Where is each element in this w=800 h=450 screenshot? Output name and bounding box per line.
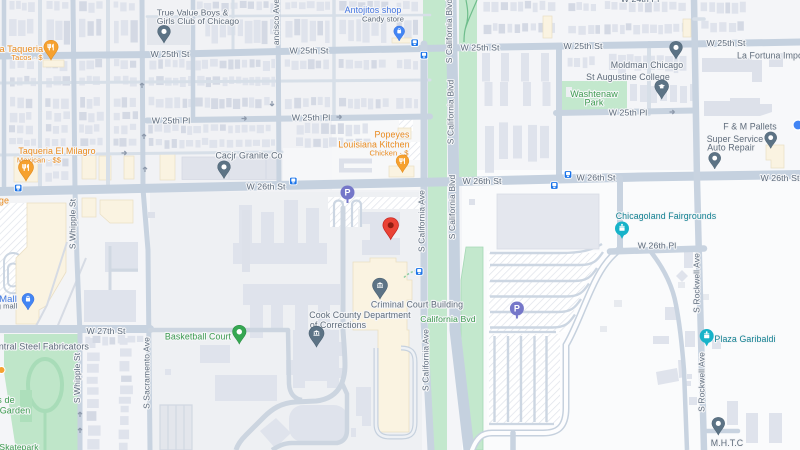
svg-text:Criminal Court Building: Criminal Court Building (371, 300, 463, 310)
svg-text:W 25th Pl: W 25th Pl (152, 116, 191, 126)
svg-text:Chicagoland Fairgrounds: Chicagoland Fairgrounds (616, 211, 717, 221)
svg-text:W 26th St: W 26th St (576, 173, 616, 183)
svg-text:Park: Park (585, 98, 604, 108)
svg-text:California Bvd: California Bvd (420, 314, 476, 324)
svg-text:W 25th Pl: W 25th Pl (292, 113, 331, 123)
svg-text:Cook County Department: Cook County Department (309, 310, 411, 320)
svg-text:Skatepark: Skatepark (0, 442, 39, 450)
svg-text:W 25th St: W 25th St (150, 49, 190, 59)
svg-text:W 24th Pl: W 24th Pl (621, 0, 660, 4)
svg-text:W 25th St: W 25th St (563, 41, 603, 51)
svg-text:W 25th St: W 25th St (460, 43, 500, 53)
svg-text:W 26th St: W 26th St (462, 176, 502, 186)
svg-text:P: P (344, 188, 350, 198)
svg-text:W 25th St: W 25th St (289, 46, 329, 56)
svg-text:Basketball Court: Basketball Court (165, 332, 232, 342)
svg-text:Girls Club of Chicago: Girls Club of Chicago (157, 16, 240, 26)
svg-text:F & M Pallets: F & M Pallets (723, 122, 777, 132)
svg-text:Central Steel Fabricators: Central Steel Fabricators (0, 342, 89, 352)
svg-text:W 25th St: W 25th St (706, 38, 746, 48)
svg-text:S California Blvd: S California Blvd (446, 80, 456, 145)
svg-text:Moldman Chicago: Moldman Chicago (611, 60, 683, 70)
svg-text:Antojitos shop: Antojitos shop (345, 5, 402, 15)
svg-text:S California Blvd: S California Blvd (447, 175, 457, 240)
svg-text:St Augustine College: St Augustine College (586, 72, 670, 82)
svg-text:ge: ge (0, 196, 9, 206)
svg-text:Garden: Garden (0, 406, 30, 416)
svg-text:S California Blvd: S California Blvd (444, 0, 454, 63)
svg-text:S California Ave: S California Ave (421, 329, 431, 391)
svg-text:Auto Repair: Auto Repair (707, 143, 755, 153)
svg-text:g mall: g mall (0, 302, 18, 311)
svg-text:S Rockwell Ave: S Rockwell Ave (697, 352, 707, 412)
svg-text:La Fortuna Impo: La Fortuna Impo (737, 51, 800, 61)
svg-text:S Whipple St: S Whipple St (72, 352, 82, 403)
svg-text:s de: s de (0, 395, 15, 405)
svg-text:S Sacramento Ave: S Sacramento Ave (142, 337, 152, 409)
svg-text:Tacos · $: Tacos · $ (11, 53, 43, 62)
svg-text:W 25th Pl: W 25th Pl (609, 108, 648, 118)
svg-text:W 26th St: W 26th St (246, 182, 286, 192)
svg-text:Plaza Garibaldi: Plaza Garibaldi (714, 334, 775, 344)
svg-text:S Rockwell Ave: S Rockwell Ave (692, 253, 702, 313)
svg-text:S California Ave: S California Ave (417, 190, 427, 252)
svg-text:P: P (514, 304, 520, 314)
svg-text:W 26th St: W 26th St (760, 173, 800, 183)
svg-text:Cacjr Granite Co: Cacjr Granite Co (215, 151, 282, 161)
svg-text:ancisco Ave: ancisco Ave (271, 0, 281, 45)
svg-text:M.H.T.C: M.H.T.C (711, 438, 744, 448)
svg-text:Candy store: Candy store (362, 15, 404, 24)
svg-text:W 26th Pl: W 26th Pl (638, 241, 677, 251)
svg-text:W 27th St: W 27th St (86, 326, 126, 336)
svg-text:Taqueria El Milagro: Taqueria El Milagro (18, 146, 95, 156)
svg-text:S Whipple St: S Whipple St (68, 198, 78, 249)
svg-text:Popeyes: Popeyes (375, 130, 410, 140)
